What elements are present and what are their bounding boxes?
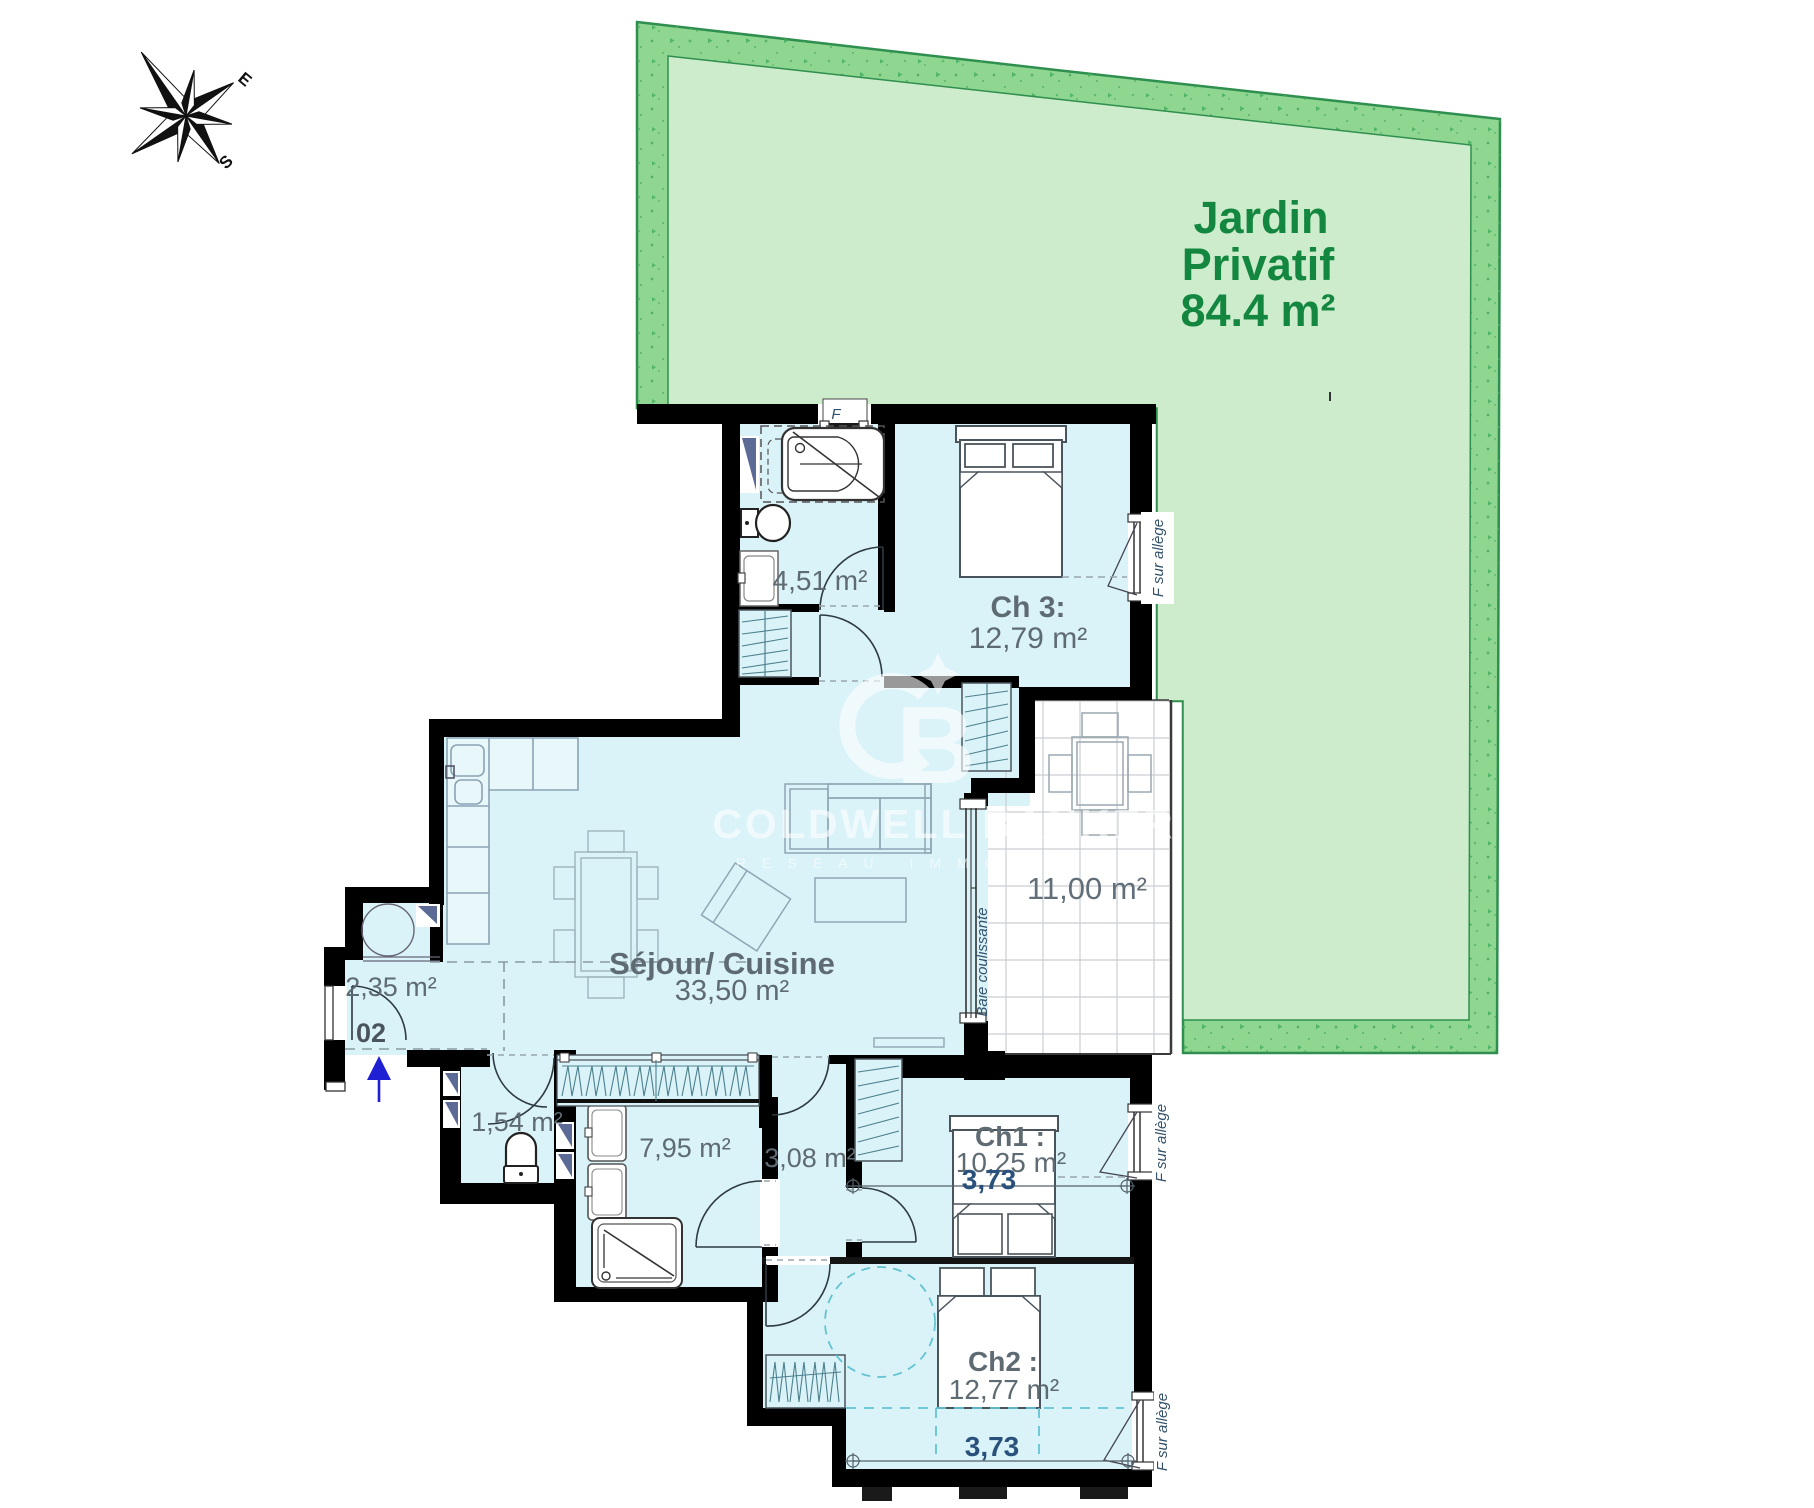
svg-text:F sur allège: F sur allège — [1150, 519, 1167, 597]
svg-text:4,51 m²: 4,51 m² — [773, 565, 868, 596]
svg-text:33,50 m²: 33,50 m² — [675, 975, 790, 1007]
svg-text:7,95 m²: 7,95 m² — [639, 1133, 731, 1163]
svg-text:F: F — [831, 406, 841, 423]
svg-text:12,79 m²: 12,79 m² — [969, 622, 1087, 655]
svg-text:84.4 m²: 84.4 m² — [1180, 285, 1335, 336]
svg-text:12,77 m²: 12,77 m² — [949, 1374, 1060, 1405]
svg-text:RESEAU IMMOBILIER: RESEAU IMMOBILIER — [736, 855, 1152, 871]
svg-text:F sur allège: F sur allège — [1154, 1393, 1171, 1471]
svg-text:F sur allège: F sur allège — [1153, 1104, 1170, 1182]
svg-text:11,00 m²: 11,00 m² — [1027, 871, 1147, 906]
svg-text:Ch 3:: Ch 3: — [991, 591, 1066, 624]
svg-text:1,54 m²: 1,54 m² — [471, 1107, 563, 1137]
svg-text:2,35 m²: 2,35 m² — [345, 972, 437, 1002]
svg-text:3,73: 3,73 — [962, 1164, 1017, 1195]
svg-text:Privatif: Privatif — [1182, 239, 1336, 290]
svg-text:S: S — [215, 151, 236, 172]
svg-text:3,73: 3,73 — [965, 1431, 1020, 1462]
svg-text:COLDWELL BANKER: COLDWELL BANKER — [712, 801, 1175, 847]
svg-text:02: 02 — [356, 1018, 386, 1048]
svg-text:B: B — [896, 684, 975, 807]
svg-text:E: E — [234, 69, 255, 91]
svg-text:Ch2 :: Ch2 : — [968, 1346, 1038, 1377]
svg-text:Baie coulissante: Baie coulissante — [974, 907, 991, 1016]
svg-text:Jardin: Jardin — [1193, 192, 1328, 243]
svg-text:3,08 m²: 3,08 m² — [764, 1143, 856, 1173]
